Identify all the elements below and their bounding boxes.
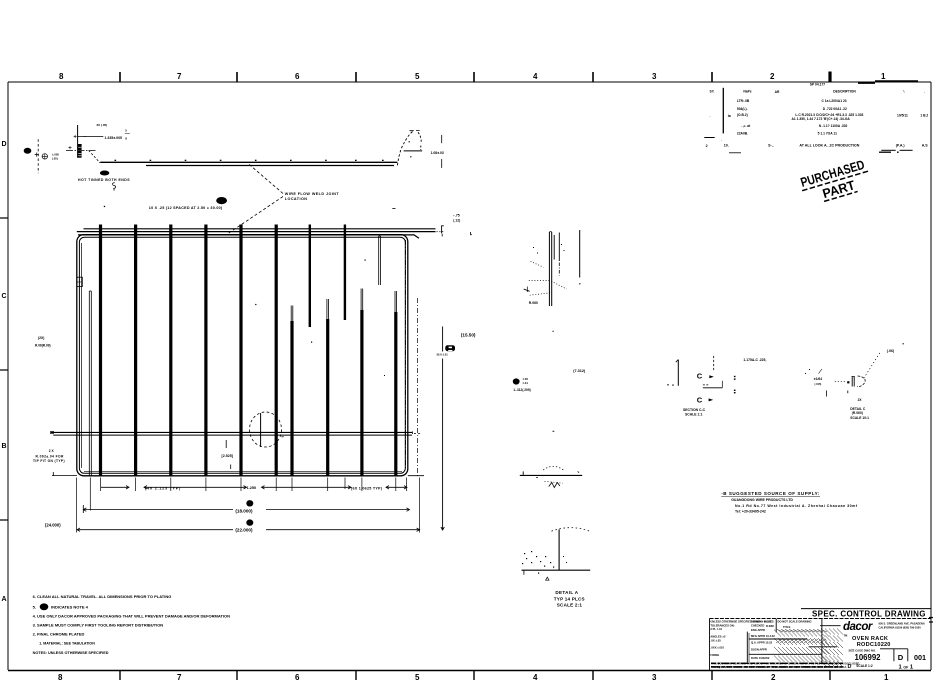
svg-text:(.05): (.05)	[52, 157, 58, 161]
svg-text:6: 6	[295, 673, 300, 682]
svg-text:(R.060): (R.060)	[852, 411, 863, 415]
svg-text:30.0-1.01: 30.0-1.01	[436, 353, 448, 357]
svg-text:8: 8	[58, 673, 63, 682]
svg-text:001: 001	[914, 653, 926, 662]
svg-text:(2X): (2X)	[38, 336, 44, 340]
svg-text:SIZE CAGE DWG NO.: SIZE CAGE DWG NO.	[849, 648, 877, 652]
svg-text:SCALE 1:1: SCALE 1:1	[685, 412, 702, 416]
svg-text:SCALE 10:1: SCALE 10:1	[850, 416, 869, 420]
svg-text:A.S: A.S	[922, 143, 929, 147]
svg-text:10.: 10.	[724, 144, 729, 148]
svg-text:DRAWN: DRAWN	[751, 620, 761, 624]
svg-text:K.LEE: K.LEE	[764, 620, 772, 624]
svg-text:AR: AR	[775, 90, 780, 94]
svg-text:5: 5	[415, 673, 420, 682]
svg-text:(18.000): (18.000)	[235, 508, 253, 513]
svg-text:dacor: dacor	[843, 621, 873, 633]
svg-text:(O.B.2): (O.B.2)	[737, 113, 748, 117]
svg-text:R.06(R.09): R.06(R.09)	[35, 344, 51, 348]
svg-text:6. CLEAN ALL NATURAL TRAVEL. A: 6. CLEAN ALL NATURAL TRAVEL. ALL DIMENSI…	[33, 594, 172, 599]
svg-text:2: 2	[706, 144, 708, 148]
svg-text:2. FINAL CHROME PLATED: 2. FINAL CHROME PLATED	[33, 632, 85, 637]
svg-text:SPEC. CONTROL DRAWING: SPEC. CONTROL DRAWING	[812, 609, 926, 618]
svg-text:A1 1.350, 1.44 7.172 'B'(C+: A1 1.350, 1.44 7.172 'B'(C+.14) .34-GA	[792, 117, 851, 121]
svg-text:SECTION C-C: SECTION C-C	[683, 408, 706, 412]
svg-text:No.1 Rd No.77 West Industrial: No.1 Rd No.77 West Industrial A. Zhenhai…	[735, 504, 858, 508]
svg-text:TIP FIT ON (TYP): TIP FIT ON (TYP)	[33, 459, 65, 463]
svg-text:SCALE 2:1: SCALE 2:1	[557, 602, 583, 607]
svg-text:3: 3	[652, 72, 657, 81]
svg-text:D: D	[898, 653, 904, 662]
svg-text:TM: TM	[844, 633, 848, 637]
svg-text:MFG APPR 10.4.02: MFG APPR 10.4.02	[751, 634, 775, 638]
svg-text:5.: 5.	[33, 605, 36, 610]
svg-text:6: 6	[295, 72, 300, 81]
svg-text:TYP 14 PLCS: TYP 14 PLCS	[554, 596, 585, 601]
svg-text:7: 7	[177, 673, 182, 682]
svg-text:(.015): (.015)	[815, 382, 822, 386]
svg-text:DO NOT SCALE DRAWING: DO NOT SCALE DRAWING	[778, 619, 812, 623]
svg-text:CALIFORNIA 91109 (626) 799-10: CALIFORNIA 91109 (626) 799-1000	[879, 626, 922, 630]
svg-text:.: .	[721, 137, 722, 141]
svg-text:ENG APPR: ENG APPR	[751, 628, 765, 632]
svg-text:INDICATES NOTE 4: INDICATES NOTE 4	[51, 605, 89, 610]
svg-text:4. USE ONLY DACOR APPROVED PAC: 4. USE ONLY DACOR APPROVED PACKAGING THA…	[33, 614, 231, 619]
svg-text:(.06): (.06)	[887, 349, 895, 353]
svg-text:(P.A.): (P.A.)	[896, 143, 906, 147]
svg-text:DSGN APPR: DSGN APPR	[751, 648, 767, 652]
svg-text:2: 2	[770, 72, 775, 81]
svg-text:HOT TINNED BOTH ENDS: HOT TINNED BOTH ENDS	[78, 178, 130, 182]
svg-text:SY.: SY.	[710, 89, 715, 93]
svg-text:(15.50): (15.50)	[461, 332, 476, 337]
svg-text:C: C	[2, 293, 7, 300]
svg-text:L.C R.2021.3 C/O/2/C+.04 +R1.3: L.C R.2021.3 C/O/2/C+.04 +R1.3.3 .325 1.…	[795, 113, 863, 117]
svg-text:3. SAMPLE MUST COMPLY FIRST TO: 3. SAMPLE MUST COMPLY FIRST TOOLING REPO…	[33, 623, 164, 628]
svg-text:.XXX ±.010: .XXX ±.010	[710, 646, 724, 650]
svg-text:NOTES: UNLESS OTHERWISE SPECIF: NOTES: UNLESS OTHERWISE SPECIFIED	[33, 651, 109, 655]
svg-text:7: 7	[177, 72, 182, 81]
svg-text:RODC10220: RODC10220	[857, 642, 891, 648]
svg-text:4: 4	[533, 72, 538, 81]
svg-text:2 PL ±.01: 2 PL ±.01	[710, 627, 722, 631]
svg-text:22A0B.: 22A0B.	[737, 131, 748, 135]
svg-text:(7.312): (7.312)	[573, 369, 586, 373]
svg-text:1. MATERIAL: SEE TABULATION: 1. MATERIAL: SEE TABULATION	[39, 642, 95, 646]
svg-text:1.250: 1.250	[247, 486, 257, 490]
svg-text:1: 1	[884, 673, 889, 682]
svg-text:2: 2	[771, 673, 776, 682]
svg-text:TOLERANCES ON:: TOLERANCES ON:	[710, 624, 734, 628]
svg-text:\: \	[904, 90, 905, 94]
svg-text:N .1.1? 1100A .302: N .1.1? 1100A .302	[819, 124, 848, 128]
svg-text:SP 04.177: SP 04.177	[810, 83, 826, 87]
svg-text:.: .	[924, 90, 925, 94]
svg-text:D .722 00A1 .22: D .722 00A1 .22	[823, 107, 847, 111]
svg-text:DATE 10/22/02: DATE 10/22/02	[751, 656, 770, 660]
svg-text:C 1a L200/A1 23: C 1a L200/A1 23	[822, 99, 847, 103]
svg-text:B: B	[2, 443, 7, 450]
svg-text:ta: ta	[728, 114, 731, 118]
svg-text:1.08±.03: 1.08±.03	[431, 151, 444, 155]
svg-text:S-..: S-..	[768, 143, 774, 147]
svg-text:(24.000): (24.000)	[45, 523, 61, 528]
svg-text:5: 5	[415, 72, 420, 81]
svg-text:10/5/11: 10/5/11	[897, 114, 908, 118]
svg-text:3: 3	[652, 673, 657, 682]
svg-text:.XX ±.03: .XX ±.03	[710, 639, 721, 643]
svg-text:ANGLES ±1°: ANGLES ±1°	[710, 635, 726, 639]
svg-text:(.12): (.12)	[453, 219, 460, 223]
svg-text:WIRE FLOW WELD JOINT: WIRE FLOW WELD JOINT	[285, 192, 340, 196]
svg-text:FINISH: FINISH	[710, 653, 719, 657]
svg-text:±1/64: ±1/64	[814, 377, 822, 381]
svg-text:1.175A-C .225,: 1.175A-C .225,	[743, 358, 766, 362]
svg-text:⌐.75: ⌐.75	[453, 213, 460, 217]
svg-text:(6X 1.0625 TYP): (6X 1.0625 TYP)	[351, 487, 383, 491]
svg-text:.: .	[710, 113, 711, 117]
svg-text:1: 1	[881, 72, 886, 81]
svg-text:A: A	[2, 596, 7, 603]
svg-text:1-.312(.299): 1-.312(.299)	[513, 388, 530, 392]
svg-text:(4X 2.125 TYP): (4X 2.125 TYP)	[145, 487, 181, 491]
svg-text:Tel: +20-33495-242: Tel: +20-33495-242	[735, 510, 766, 514]
svg-text:DESCRIPTION: DESCRIPTION	[833, 90, 856, 94]
svg-text:950 S. GREENLAND AVE. PASADENA: 950 S. GREENLAND AVE. PASADENA	[879, 622, 925, 626]
svg-text:[2.525]: [2.525]	[222, 454, 233, 458]
svg-text:R.060: R.060	[529, 301, 538, 305]
svg-text:1.335±.005: 1.335±.005	[105, 136, 123, 140]
svg-text:±.31: ±.31	[523, 381, 529, 385]
svg-text:106992: 106992	[855, 653, 882, 662]
svg-text:C: C	[697, 372, 703, 381]
svg-text:GUANGDONG WIRE PRODUCTS LTD: GUANGDONG WIRE PRODUCTS LTD	[731, 498, 793, 502]
svg-text:NaPe: NaPe	[743, 90, 751, 94]
svg-text:D: D	[2, 141, 7, 148]
svg-text:LOCATION: LOCATION	[285, 197, 308, 201]
svg-text:DETAIL C: DETAIL C	[850, 407, 866, 411]
svg-text:R.062±.04 FOR: R.062±.04 FOR	[36, 454, 64, 458]
svg-text:10 X .25 (12 SPACED AT 2.50 =: 10 X .25 (12 SPACED AT 2.50 = 30.00)	[149, 206, 223, 210]
svg-text:5 1.1 7OA 11: 5 1.1 7OA 11	[818, 131, 837, 135]
svg-text:1 B.2: 1 B.2	[920, 114, 928, 118]
svg-text:. ,=. at: . ,=. at	[741, 124, 751, 128]
svg-text:8: 8	[59, 72, 64, 81]
svg-text:DETAIL A: DETAIL A	[555, 590, 578, 595]
svg-text:(22.000): (22.000)	[235, 527, 253, 532]
svg-text:TITLE: TITLE	[783, 625, 791, 629]
svg-text:C: C	[697, 395, 703, 404]
svg-text:AT ALL LOOK A. .2C PRODUCTION: AT ALL LOOK A. .2C PRODUCTION	[799, 143, 859, 147]
svg-text:CHECKED: CHECKED	[751, 624, 764, 628]
svg-text:THE EQUIPMENT SHOWN HEREON IS: THE EQUIPMENT SHOWN HEREON IS SUBJECT TO…	[711, 666, 847, 669]
svg-text:2X (.05): 2X (.05)	[97, 123, 108, 127]
svg-text:504(L).: 504(L).	[737, 107, 748, 111]
svg-text:LTR:.0B: LTR:.0B	[737, 99, 750, 103]
svg-text:R.KIM: R.KIM	[766, 624, 774, 628]
svg-text:4: 4	[533, 673, 538, 682]
svg-text:-B SUGGESTED SOURCE OF SUPPLY: -B SUGGESTED SOURCE OF SUPPLY:	[721, 491, 820, 496]
svg-text:Q.A. APPR 10.22: Q.A. APPR 10.22	[751, 641, 773, 645]
